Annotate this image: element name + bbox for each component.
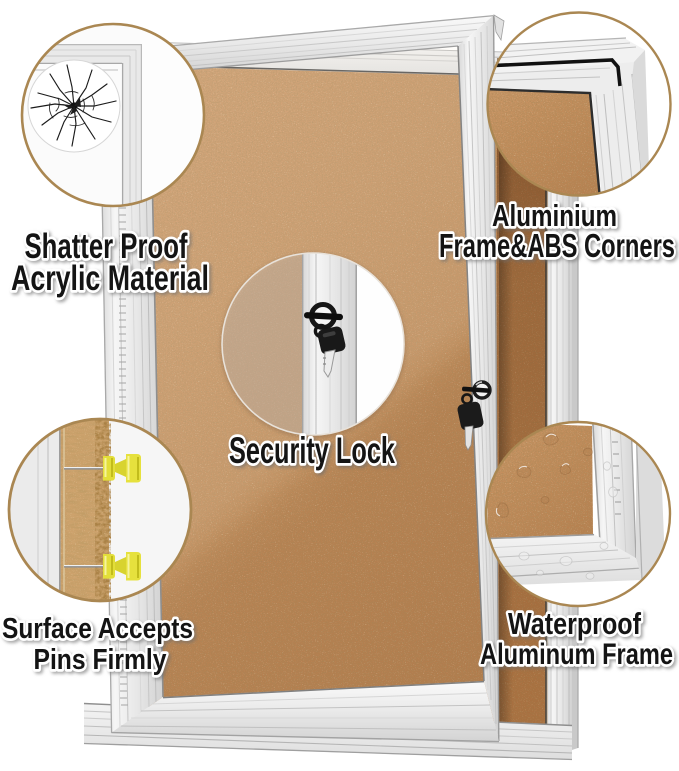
svg-text:Aluminum Frame: Aluminum Frame xyxy=(480,638,673,671)
svg-text:Frame&ABS Corners: Frame&ABS Corners xyxy=(439,227,675,264)
svg-text:Waterproof: Waterproof xyxy=(508,607,642,641)
svg-text:Pins Firmly: Pins Firmly xyxy=(34,644,167,676)
svg-text:Security Lock: Security Lock xyxy=(229,430,395,471)
svg-text:Acrylic Material: Acrylic Material xyxy=(11,259,209,298)
svg-text:Surface Accepts: Surface Accepts xyxy=(2,613,193,645)
